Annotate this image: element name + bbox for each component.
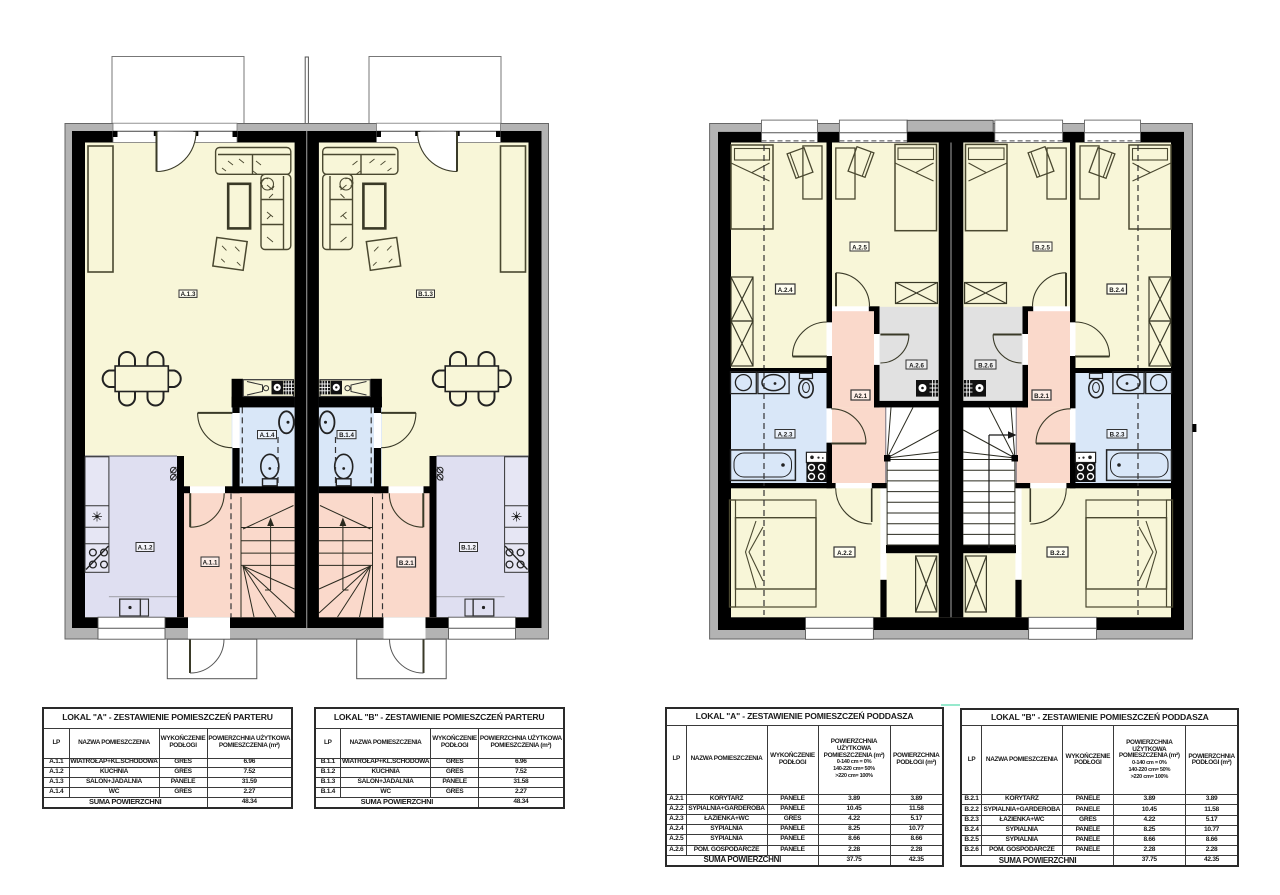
svg-text:A.1.4: A.1.4 <box>260 432 275 439</box>
svg-text:A.1.3: A.1.3 <box>181 291 196 298</box>
svg-text:A2.1: A2.1 <box>854 393 868 400</box>
svg-text:A.1.1: A.1.1 <box>203 560 218 567</box>
svg-text:B.2.5: B.2.5 <box>1035 245 1050 252</box>
svg-text:B.2.1: B.2.1 <box>399 560 414 567</box>
svg-text:A.2.3: A.2.3 <box>778 432 793 439</box>
svg-text:B.2.2: B.2.2 <box>1050 550 1065 557</box>
svg-text:B.2.4: B.2.4 <box>1109 287 1124 294</box>
svg-text:A.2.6: A.2.6 <box>909 363 924 370</box>
svg-text:A.2.2: A.2.2 <box>837 550 852 557</box>
svg-text:A.2.4: A.2.4 <box>778 287 793 294</box>
svg-text:B.1.3: B.1.3 <box>418 291 433 298</box>
svg-text:B.2.1: B.2.1 <box>1034 393 1049 400</box>
svg-text:B.1.2: B.1.2 <box>461 545 476 552</box>
svg-text:A.1.2: A.1.2 <box>138 545 153 552</box>
svg-text:B.2.3: B.2.3 <box>1110 432 1125 439</box>
svg-text:B.1.4: B.1.4 <box>339 432 354 439</box>
svg-text:B.2.6: B.2.6 <box>978 363 993 370</box>
svg-text:A.2.5: A.2.5 <box>852 245 867 252</box>
